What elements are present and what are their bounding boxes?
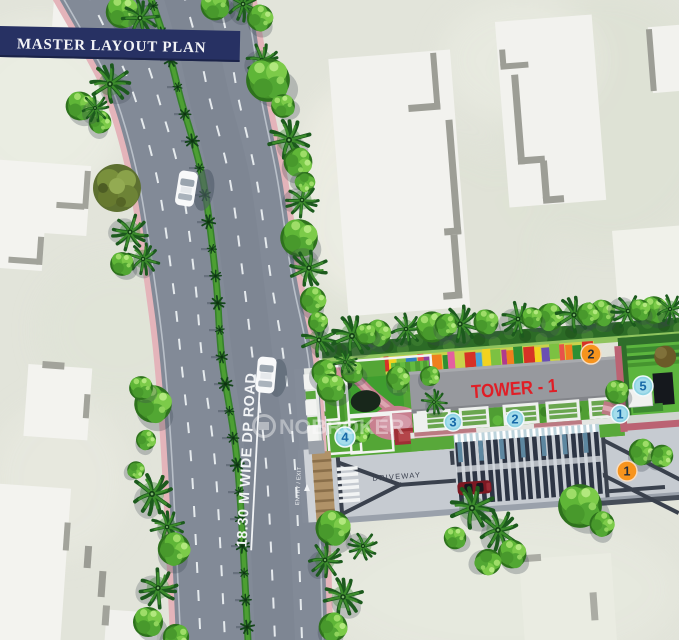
svg-text:2: 2 (511, 412, 518, 427)
svg-text:NOBROKER: NOBROKER (279, 415, 405, 439)
svg-text:1: 1 (624, 465, 631, 479)
svg-text:2: 2 (588, 348, 595, 362)
svg-text:3: 3 (449, 415, 456, 430)
svg-text:5: 5 (639, 379, 646, 394)
svg-text:1: 1 (616, 407, 623, 422)
